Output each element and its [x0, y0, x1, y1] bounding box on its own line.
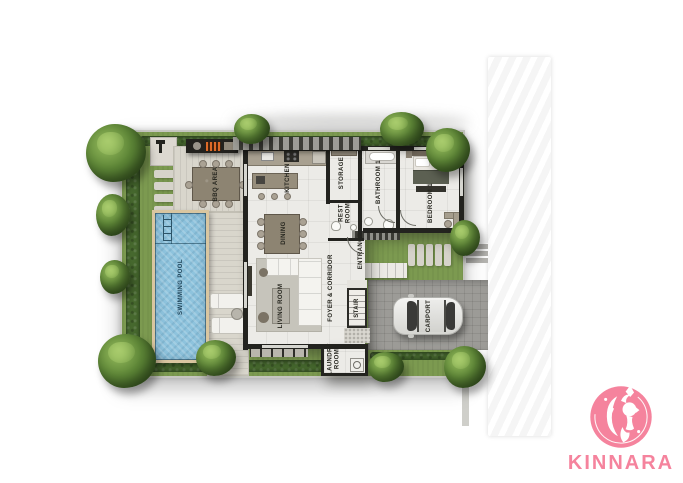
bbq-chair	[199, 160, 207, 168]
wall-bathroom-bedroom	[396, 146, 400, 232]
driveway-paver	[408, 244, 415, 266]
gravel-patch	[344, 328, 370, 343]
car-rear-window	[446, 302, 455, 330]
bedroom-1-label: BEDROOM 1	[428, 183, 434, 223]
bathroom-1-label: BATHROOM 1	[376, 160, 382, 204]
pouf	[258, 312, 269, 323]
wall-kitchen-storage	[326, 146, 330, 204]
pouf	[259, 268, 268, 277]
sofa-chaise	[298, 258, 322, 326]
bbq-grill-icon	[206, 142, 221, 151]
wall-south-right	[363, 228, 464, 233]
sun-lounger	[211, 317, 246, 334]
kitchen-sink-icon	[261, 152, 274, 161]
bbq-area-label: BBQ AREA	[213, 167, 219, 202]
wall-storage-bathroom	[358, 146, 362, 241]
sliding-door	[244, 164, 247, 196]
pool-lane-line	[155, 243, 206, 244]
side-table	[231, 308, 243, 320]
floor-plan-canvas: SWIMMING POOL BBQ AREA KITCHEN DINING ST…	[0, 0, 683, 483]
sliding-door	[244, 262, 247, 308]
washer-drum-icon	[353, 361, 361, 369]
island-hob-icon	[256, 176, 265, 184]
kitchen-label: KITCHEN	[285, 163, 291, 192]
swimming-pool-label: SWIMMING POOL	[178, 259, 184, 315]
kinnara-logo-icon	[582, 384, 660, 450]
bed-blanket	[413, 170, 449, 184]
carport-label: CARPORT	[426, 300, 432, 332]
pool-ladder-icon	[163, 215, 172, 241]
dining-chair	[257, 242, 265, 250]
fridge-icon	[312, 151, 326, 164]
desk-chair	[444, 220, 452, 228]
dining-chair	[299, 230, 307, 238]
driveway-paver	[444, 244, 451, 266]
rest-room-label: REST ROOM	[338, 196, 351, 230]
foyer-corridor-label: FOYER & CORRIDOR	[328, 254, 334, 321]
bathroom-sink-icon	[364, 217, 373, 226]
kitchen-stool	[271, 193, 278, 200]
driveway-paver	[435, 244, 442, 266]
window	[368, 147, 390, 150]
road	[488, 57, 551, 436]
entry-steps	[363, 263, 407, 278]
dining-chair	[299, 218, 307, 226]
brand-name: KINNARA	[556, 452, 683, 475]
stair-label: STAIR	[354, 298, 360, 318]
dining-chair	[299, 242, 307, 250]
dining-chair	[257, 218, 265, 226]
bbq-chair	[225, 160, 233, 168]
storage-label: STORAGE	[339, 157, 345, 189]
living-room-label: LIVING ROOM	[278, 284, 284, 329]
palm-tree	[98, 334, 156, 388]
sliding-door	[262, 345, 308, 348]
car-windshield	[407, 301, 417, 331]
bbq-chair	[225, 200, 233, 208]
bbq-chair	[185, 181, 193, 189]
laundry-room-label: LAUNDRY ROOM	[327, 342, 340, 376]
entrance-label: ENTRANCE	[358, 233, 364, 270]
bbq-sink-icon	[193, 142, 201, 150]
kitchen-stool	[284, 193, 291, 200]
dining-label: DINING	[281, 221, 287, 244]
car-mirror	[408, 294, 414, 298]
driveway-paver	[417, 244, 424, 266]
sofa-top	[266, 258, 302, 276]
sun-lounger	[210, 293, 244, 309]
bathtub-basin	[369, 152, 395, 161]
palm-tree	[444, 346, 486, 388]
nightstand	[406, 151, 412, 158]
stove-icon	[284, 151, 299, 162]
car-mirror	[408, 334, 414, 338]
dining-chair	[257, 230, 265, 238]
window	[460, 168, 463, 196]
kitchen-stool	[258, 193, 265, 200]
driveway-paver	[426, 244, 433, 266]
shower-pole-icon	[159, 143, 162, 153]
bbq-chair	[199, 200, 207, 208]
